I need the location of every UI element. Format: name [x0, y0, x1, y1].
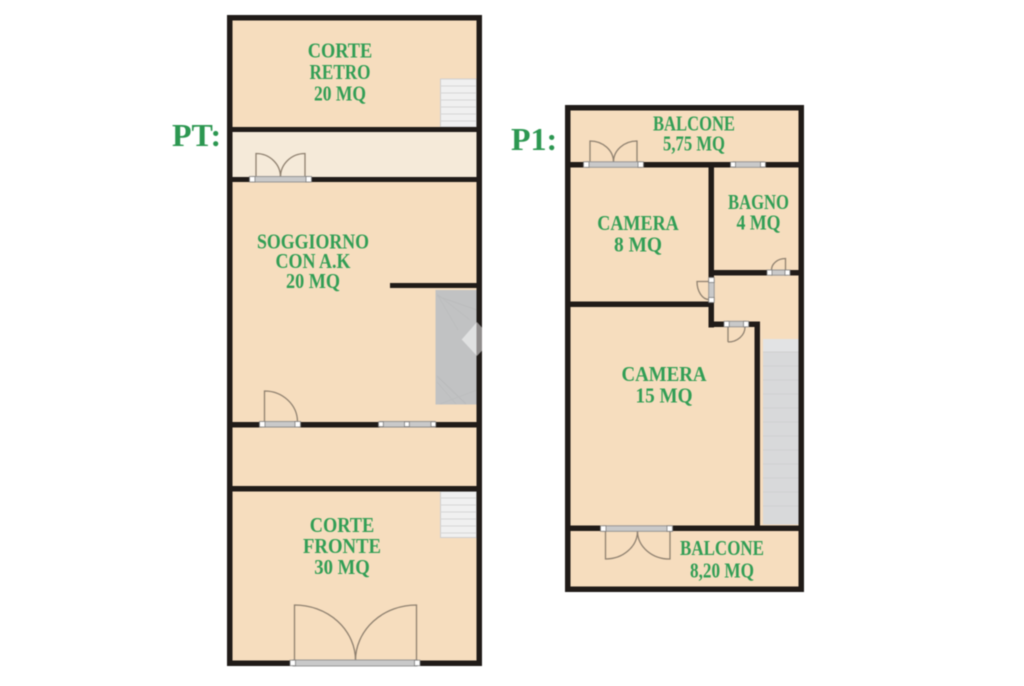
svg-text:CAMERA: CAMERA	[622, 362, 708, 386]
svg-text:CAMERA: CAMERA	[597, 211, 679, 235]
svg-text:RETRO: RETRO	[310, 60, 371, 84]
svg-text:20 MQ: 20 MQ	[314, 82, 366, 106]
svg-text:BALCONE: BALCONE	[680, 536, 764, 560]
svg-text:20 MQ: 20 MQ	[286, 269, 340, 293]
svg-text:4 MQ: 4 MQ	[737, 211, 781, 235]
svg-text:PT:: PT:	[172, 117, 221, 153]
svg-text:5,75 MQ: 5,75 MQ	[663, 132, 725, 156]
svg-text:8 MQ: 8 MQ	[614, 233, 662, 257]
svg-text:CORTE: CORTE	[308, 39, 373, 63]
svg-text:8,20 MQ: 8,20 MQ	[690, 559, 754, 583]
svg-text:15 MQ: 15 MQ	[636, 384, 693, 408]
svg-text:30 MQ: 30 MQ	[314, 555, 370, 579]
svg-text:P1:: P1:	[511, 121, 557, 157]
